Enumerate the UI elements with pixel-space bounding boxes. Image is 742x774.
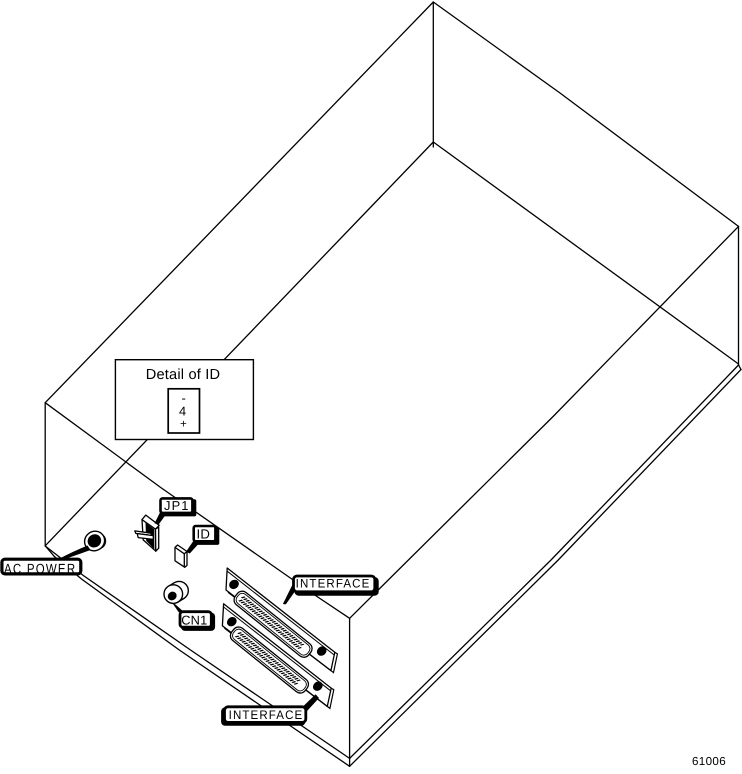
svg-text:JP1: JP1: [164, 498, 190, 513]
svg-text:INTERFACE: INTERFACE: [229, 708, 304, 722]
svg-text:INTERFACE: INTERFACE: [296, 576, 371, 590]
svg-text:ID: ID: [197, 526, 211, 541]
svg-text:+: +: [180, 418, 187, 431]
svg-text:61006: 61006: [692, 755, 726, 768]
svg-text:4: 4: [179, 404, 186, 419]
svg-text:AC POWER: AC POWER: [4, 560, 76, 576]
svg-text:CN1: CN1: [181, 612, 207, 627]
svg-text:Detail of ID: Detail of ID: [146, 367, 221, 383]
